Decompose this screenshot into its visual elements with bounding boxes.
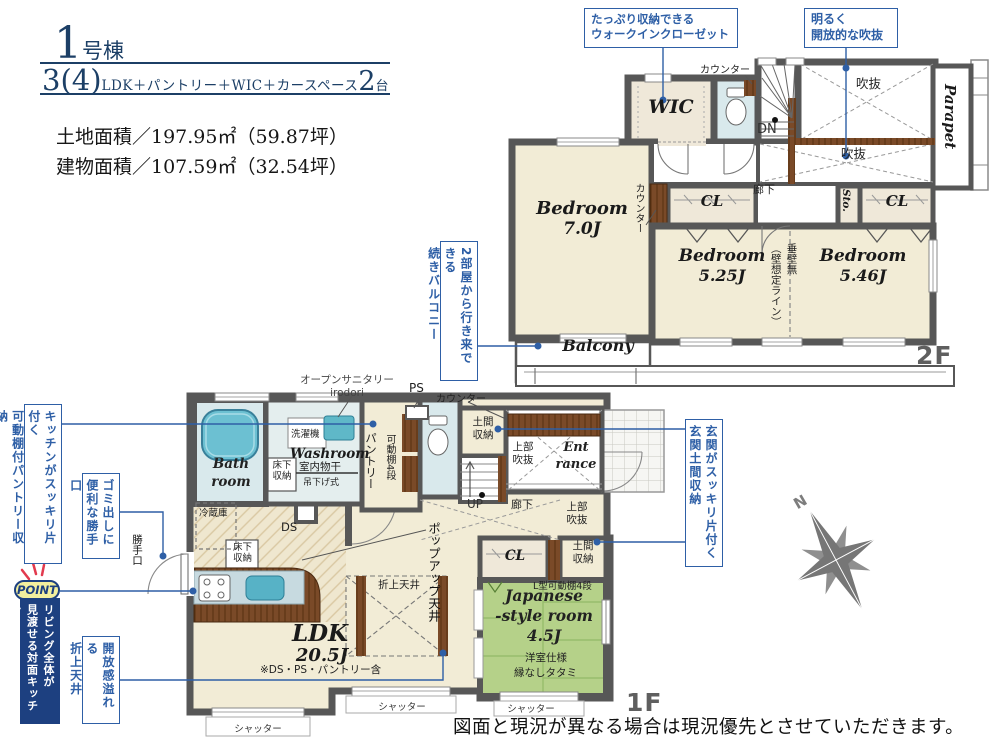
building-unit: 号棟 [82,39,124,63]
floor-label-2f: 2F [916,341,952,370]
point-banner: リビング全体が 見渡せる対面キッチン [20,598,60,724]
corridor-label-1f: 廊下 [511,496,533,512]
callout-entrance-storage: 玄関がスッキリ片付く 玄関土間収納 [685,419,723,567]
header-divider-bottom [40,93,390,95]
doma-storage-lower: 土間 収納 [562,540,604,566]
building-area: 建物面積／107.59㎡（32.54坪） [56,152,348,182]
storage-sto-label: Sto. [840,189,852,225]
bedroom-size: 5.46J [796,266,930,285]
counter-label-2f-toilet: カウンター [700,61,750,76]
doma-storage-upper: 土間 収納 [461,416,505,442]
indoor-drying-label: 室内物干 [299,459,341,474]
coffered-ceiling-label: 折上天井 [378,577,420,592]
back-door-label: 勝手口 [130,534,145,580]
ldk-note: ※DS・PS・パントリー含 [260,662,381,677]
floorplan-flyer: 1号棟 3(4) LDK＋パントリー＋WIC＋カースペース 2 台 土地面積／1… [0,0,1000,750]
shutter-label-2: シャッター [372,699,432,713]
room-entrance: Ent rance [552,440,600,474]
callout-bright-void: 明るく 開放的な吹抜 [804,8,898,48]
room-wic: WIC [634,96,708,118]
callout-coffered-ceiling: 開放感溢れる 折上天井 [82,636,120,724]
upper-void-label-2: 上部 吹抜 [559,501,595,527]
counter-label-1f: カウンター [436,390,486,405]
void-label-2: 吹抜 [841,143,866,162]
fridge-label: 冷蔵庫 [199,505,228,519]
plan-summary: 3(4) LDK＋パントリー＋WIC＋カースペース 2 台 [42,63,394,97]
ds-label: DS [281,520,297,534]
sparkle-icon [22,563,44,579]
balcony-label: Balcony [548,336,648,355]
japanese-note-1: 洋室仕様 [525,650,567,665]
open-sanitary-label: オープンサニタリー irodori [292,374,402,400]
room-pantry: パントリー [363,432,379,508]
compass-icon [765,487,907,634]
room-bedroom-7: Bedroom 7.0J [517,198,647,239]
room-bath: Bath room [201,456,261,491]
plan-text: LDK＋パントリー＋WIC＋カースペース [102,74,359,94]
bedroom-name: Bedroom [796,246,930,266]
corridor-label-2f: 廊下 [753,181,775,197]
stairs-up-label: UP [467,497,483,511]
callout-back-door: ゴミ出しに 便利な勝手口 [82,473,120,559]
ps-label: PS [409,381,424,395]
disclaimer-text: 図面と現況が異なる場合は現況優先とさせていただきます。 [453,713,964,739]
popup-ceiling-label: ポップアップ天井 [424,522,443,654]
room-bedroom-546: Bedroom 5.46J [796,246,930,285]
underfloor-storage-kitchen: 床下 収納 [227,542,258,565]
closet-cl-2f-right: CL [864,192,930,210]
point-badge: POINT [14,580,60,600]
stairs-dn-label: DN [757,122,777,137]
callout-pantry: キッチンがスッキリ片付く 可動棚付パントリー収納 [24,404,62,564]
bedroom-size: 7.0J [517,219,647,239]
parapet-label: Parapet [941,84,959,180]
washer-label: 洗濯機 [291,426,320,440]
void-label-1: 吹抜 [856,73,881,92]
land-area: 土地面積／197.95㎡（59.87坪） [56,122,348,152]
area-info: 土地面積／197.95㎡（59.87坪） 建物面積／107.59㎡（32.54坪… [56,122,348,182]
room-ldk: LDK [285,620,355,647]
room-japanese: Japanese -style room 4.5J [488,586,600,646]
bedroom-name: Bedroom [517,198,647,219]
upper-void-label-1: 上部 吹抜 [505,441,541,467]
closet-cl-1f: CL [496,548,534,564]
closet-cl-2f-left: CL [676,192,748,210]
japanese-note-2: 縁なしタタミ [514,665,577,680]
plan-count: 3(4) [42,63,102,97]
callout-wic-storage: たっぷり収納できる ウォークインクローゼット [584,8,738,48]
callout-balcony: 2部屋から行き来できる 続きバルコニー [440,241,478,381]
hanging-type-label: 吊下げ式 [303,475,339,488]
pantry-shelf-label: 可動棚4段 [382,434,397,500]
wall-note: 垂壁無 （壁想定ライン） [767,243,799,358]
shutter-label-1: シャッター [228,721,288,735]
underfloor-storage-washroom: 床下 収納 [268,460,296,483]
car-unit: 台 [376,75,389,94]
